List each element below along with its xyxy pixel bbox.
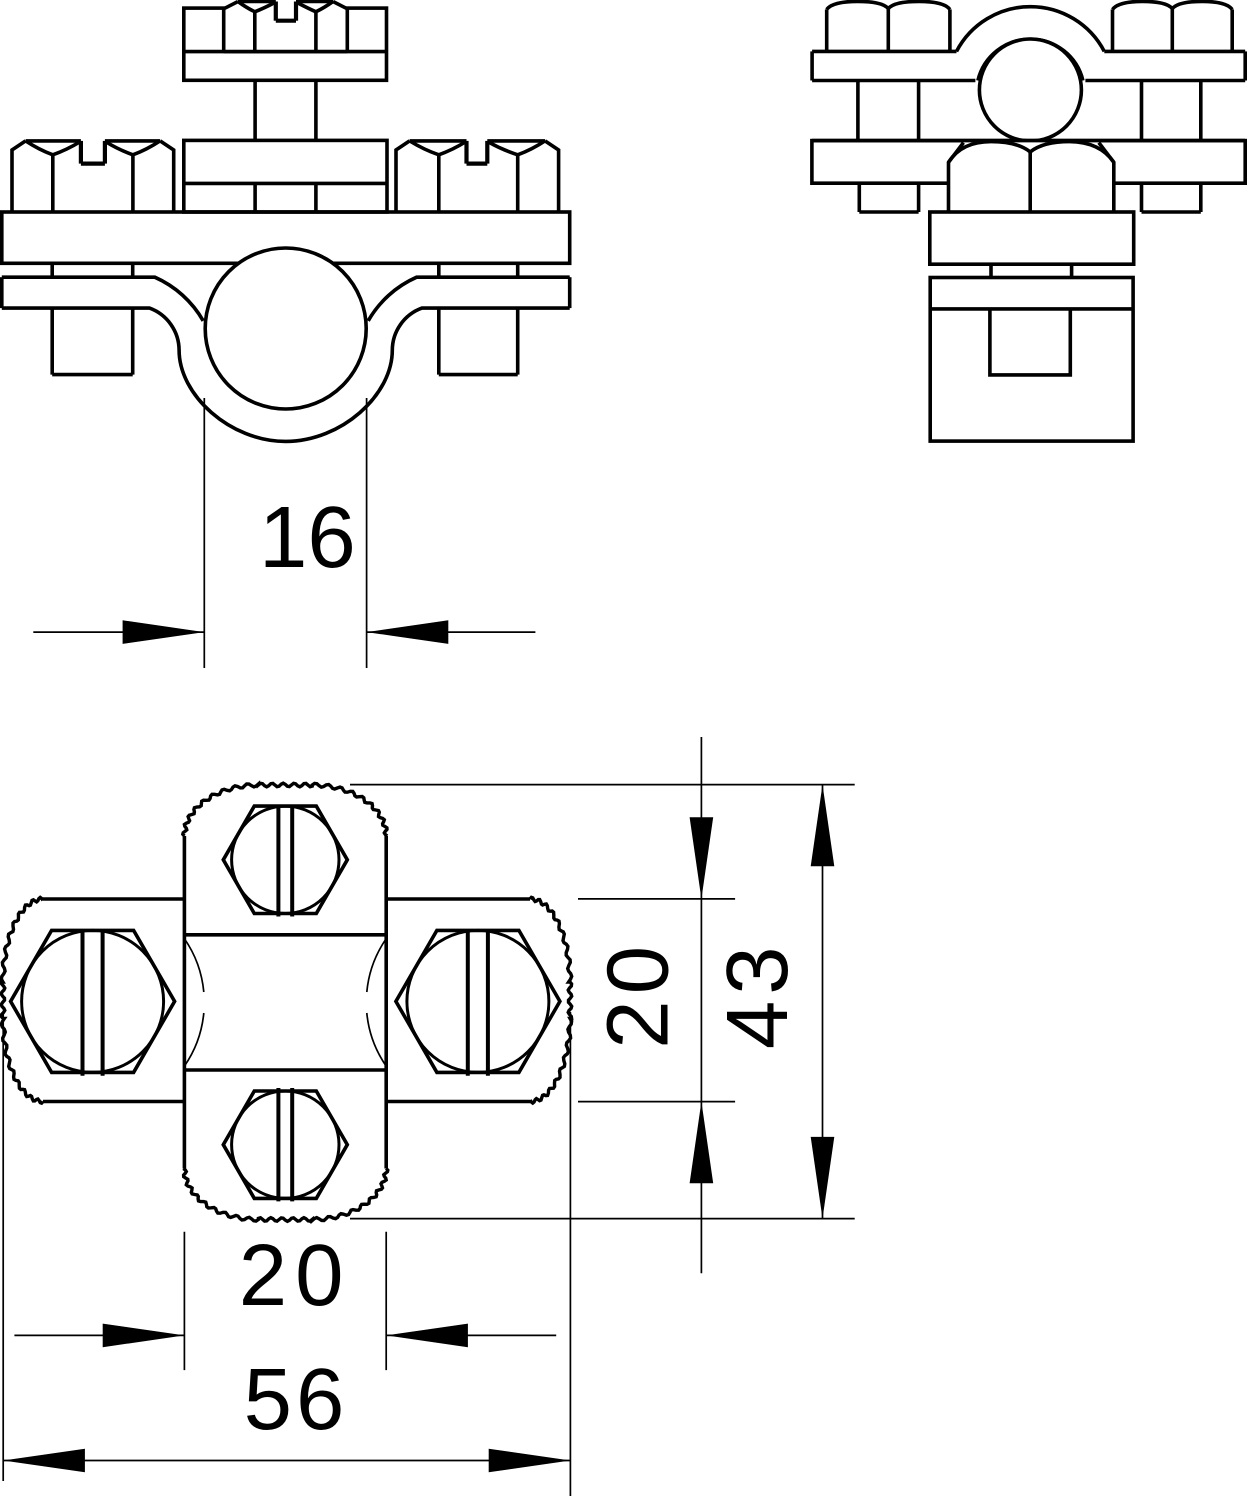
svg-text:20: 20 <box>239 1227 352 1324</box>
svg-text:56: 56 <box>244 1351 349 1448</box>
svg-text:43: 43 <box>709 940 806 1049</box>
svg-text:20: 20 <box>590 940 687 1049</box>
svg-text:16: 16 <box>259 489 356 586</box>
